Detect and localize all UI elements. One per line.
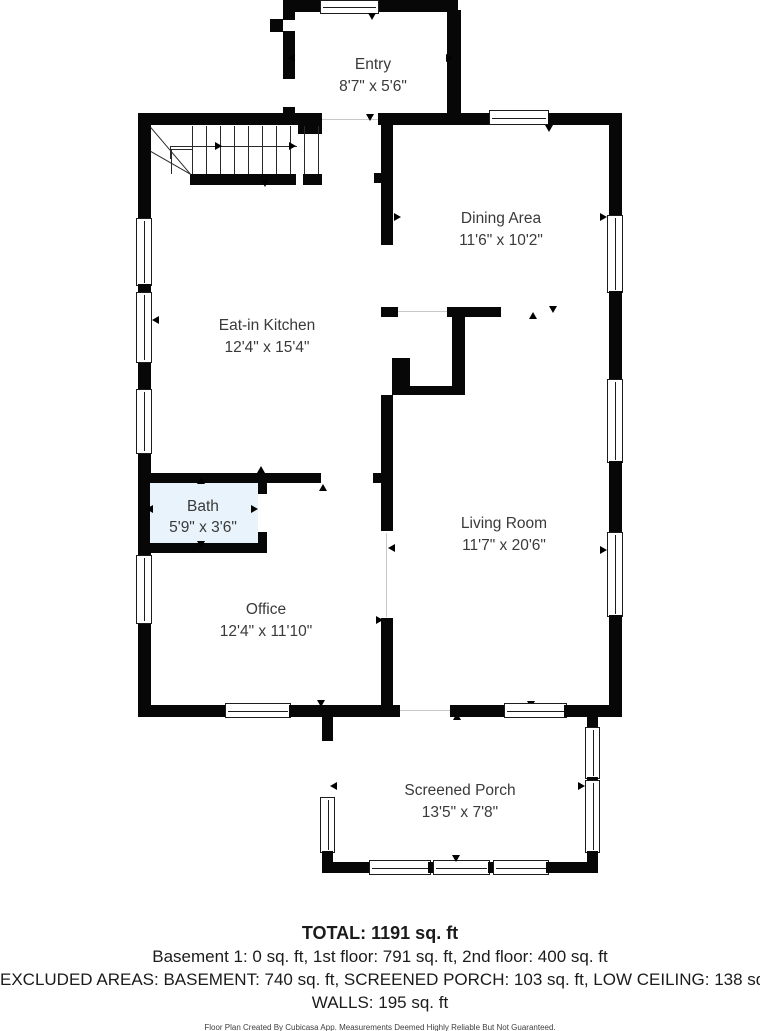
stair-tread [304,126,305,174]
stair-tread [206,126,207,174]
wall-divider-upper [381,125,393,245]
window-living-right-2 [607,532,623,617]
marker-entry-right [446,54,453,62]
stair-direction-start [170,146,171,159]
marker-entry-window [368,13,376,20]
room-name: Screened Porch [404,780,515,802]
marker-porch-right [578,782,585,790]
marker-office-bottom [317,700,325,707]
stair-tread [262,126,263,174]
room-label-dining: Dining Area 11'6" x 10'2" [459,208,543,252]
room-name: Office [220,599,312,621]
wall-divider-stub [374,173,381,183]
room-name: Dining Area [459,208,543,230]
stair-winder-edge [171,149,192,150]
window-porch-right-1 [585,727,600,779]
wall-closet-notch [392,358,410,388]
room-name: Bath [169,496,237,517]
window-porch-bottom-1 [369,860,431,875]
room-dimensions: 5'9" x 3'6" [169,517,237,538]
wall-main-bottom-d [564,705,622,717]
stair-tread [276,126,277,174]
threshold-porch-door [400,710,452,711]
stair-tread [248,126,249,174]
wall-closet-top-left [381,307,398,317]
marker-entry-doorway [366,114,374,121]
window-kitchen-left-1 [136,218,152,286]
room-label-kitchen: Eat-in Kitchen 12'4" x 15'4" [219,315,316,359]
marker-dining-living-a [529,312,537,319]
marker-dining-top-window [545,125,553,132]
area-summary: TOTAL: 1191 sq. ft Basement 1: 0 sq. ft,… [0,922,760,1031]
wall-porch-bottom-a [322,862,371,873]
room-dimensions: 8'7" x 5'6" [339,76,407,98]
marker-bath-wall [257,466,265,473]
stair-tread [220,126,221,174]
wall-stairs-bottom-a [190,174,296,185]
marker-kitchen-left-window [152,316,159,324]
wall-bath-right-a [258,483,267,494]
room-label-bath: Bath 5'9" x 3'6" [169,496,237,538]
marker-entry-left [288,54,295,62]
window-kitchen-left-2 [136,292,152,363]
stair-tread [318,126,319,174]
stair-direction-arrow [289,142,296,150]
window-entry-top [320,0,379,14]
stair-direction-line [170,146,297,147]
room-label-office: Office 12'4" x 11'10" [220,599,312,643]
wall-porch-bottom-b [546,862,598,873]
wall-main-top-b [378,113,492,125]
marker-dining-living-b [549,306,557,313]
window-kitchen-left-3 [136,389,152,454]
wall-entry-outer-stub [270,19,283,32]
marker-porch-left [330,782,337,790]
window-porch-bottom-3 [493,860,549,875]
walls-area: WALLS: 195 sq. ft [0,991,760,1014]
marker-dining-right-window [600,213,607,221]
wall-closet-right [452,317,465,395]
room-name: Eat-in Kitchen [219,315,316,337]
window-porch-right-2 [585,780,600,853]
marker-bath-door [251,505,258,513]
wall-stairs-bottom-b [303,174,322,185]
hall-door-line [386,533,387,617]
window-office-bottom [225,703,291,718]
closet-door-line [398,311,448,312]
window-porch-left [320,797,335,853]
stair-tread [234,126,235,174]
wall-entry-right [447,10,461,114]
wall-main-right-c [609,461,622,534]
stair-tread [192,126,193,174]
room-label-entry: Entry 8'7" x 5'6" [339,54,407,98]
marker-divider [394,213,401,221]
room-dimensions: 13'5" x 7'8" [404,802,515,824]
excluded-areas: EXCLUDED AREAS: BASEMENT: 740 sq. ft, SC… [0,968,760,991]
marker-porch-bottom [452,855,460,862]
window-dining-top [489,110,549,125]
wall-closet-top-right [447,307,501,317]
wall-main-bottom-c [450,705,508,717]
window-porch-bottom-2 [433,860,490,875]
total-area: TOTAL: 1191 sq. ft [0,922,760,945]
disclaimer: Floor Plan Created By Cubicasa App. Meas… [0,1023,760,1031]
wall-main-top-a [138,113,322,125]
room-label-porch: Screened Porch 13'5" x 7'8" [404,780,515,824]
window-office-left [136,555,152,624]
stair-direction-arrow [215,142,222,150]
wall-kitchen-bath [142,473,321,483]
floor-plan-page: Entry 8'7" x 5'6" Dining Area 11'6" x 10… [0,0,760,1031]
window-living-right-1 [607,379,623,463]
marker-bath-left [146,505,153,513]
wall-main-right-a [609,113,622,217]
room-name: Entry [339,54,407,76]
marker-bath-bottom [197,541,205,548]
room-dimensions: 11'7" x 20'6" [461,535,547,557]
room-dimensions: 12'4" x 11'10" [220,621,312,643]
wall-kitchen-bath-stub [373,473,381,483]
room-dimensions: 12'4" x 15'4" [219,337,316,359]
wall-divider-mid [381,395,393,531]
wall-main-bottom-a [138,705,230,717]
room-dimensions: 11'6" x 10'2" [459,230,543,252]
wall-main-right-b [609,291,622,381]
window-dining-right [607,215,623,293]
marker-kitchen-opening [319,484,327,491]
wall-entry-left-a [283,10,295,20]
marker-stairs-opening [261,180,269,187]
wall-main-right-d [609,615,622,717]
room-name: Living Room [461,513,547,535]
wall-porch-left-a [322,717,333,741]
stair-winder-edge [171,149,172,174]
marker-hall-door-a [388,544,395,552]
marker-living-right-window [600,546,607,554]
stair-tread [290,126,291,174]
marker-bath-top [197,477,205,484]
window-living-bottom [504,703,567,718]
wall-divider-lower [381,618,393,707]
floor-areas: Basement 1: 0 sq. ft, 1st floor: 791 sq.… [0,945,760,968]
room-label-living: Living Room 11'7" x 20'6" [461,513,547,557]
